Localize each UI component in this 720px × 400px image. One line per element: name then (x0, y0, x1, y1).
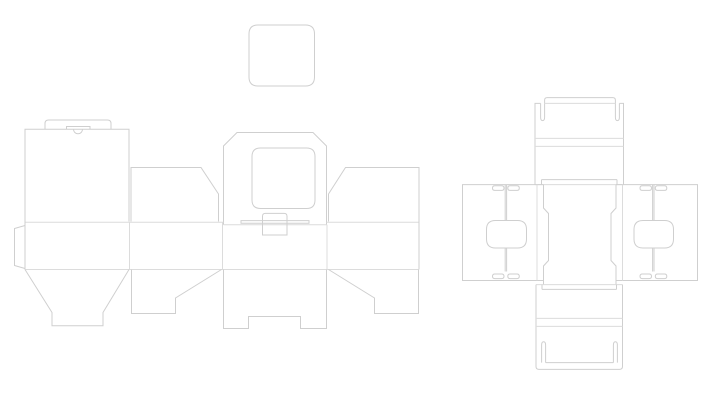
dust-flap-right (329, 168, 420, 222)
hook-slit-right (613, 342, 617, 363)
hook-slit-left (541, 103, 545, 120)
rounded-cutout (487, 221, 527, 249)
rounded-square-lid (249, 25, 315, 86)
center-bottom-flap (224, 270, 327, 329)
column-right-edge (611, 185, 616, 285)
left-dieline (15, 120, 420, 329)
column-left-edge (544, 185, 549, 285)
flap-right-edge (619, 103, 623, 184)
hook-slit-right (615, 103, 619, 120)
window-cutout (252, 148, 315, 209)
back-panel (25, 129, 129, 221)
tuck-lid-tab (45, 120, 111, 129)
flap-outline (536, 285, 623, 370)
glue-tab (15, 226, 26, 269)
flap-left-edge (535, 103, 541, 184)
right-dieline-left-wing (463, 185, 544, 281)
lock-ear (640, 274, 652, 279)
lock-flap-left (132, 270, 222, 314)
lock-slot (241, 221, 309, 224)
tuck-tab (263, 213, 288, 235)
right-dieline-column (536, 185, 623, 285)
lock-ear (655, 274, 667, 279)
rounded-cutout (634, 221, 674, 249)
hook-slit-left (542, 342, 546, 363)
lock-ear (655, 186, 667, 191)
wing-outline (463, 185, 544, 281)
lock-flap-right (329, 270, 419, 314)
lid-blank (249, 25, 315, 86)
dieline-canvas (0, 0, 720, 400)
window-flap (224, 133, 327, 225)
lock-ear (493, 186, 505, 191)
tuck-tab-top (545, 98, 616, 104)
right-dieline-top-flap (535, 98, 624, 185)
lock-ear (640, 186, 652, 191)
bucket-flap (25, 270, 129, 326)
lock-ear (493, 274, 505, 279)
dust-flap-left (131, 168, 219, 222)
right-dieline-right-wing (616, 185, 698, 281)
thumb-notch-arc (74, 129, 83, 134)
dieline-drawing (0, 0, 720, 400)
lock-ear (508, 274, 520, 279)
wing-outline (616, 185, 698, 281)
lock-ear (508, 186, 520, 191)
right-dieline-bottom-flap (536, 285, 623, 370)
